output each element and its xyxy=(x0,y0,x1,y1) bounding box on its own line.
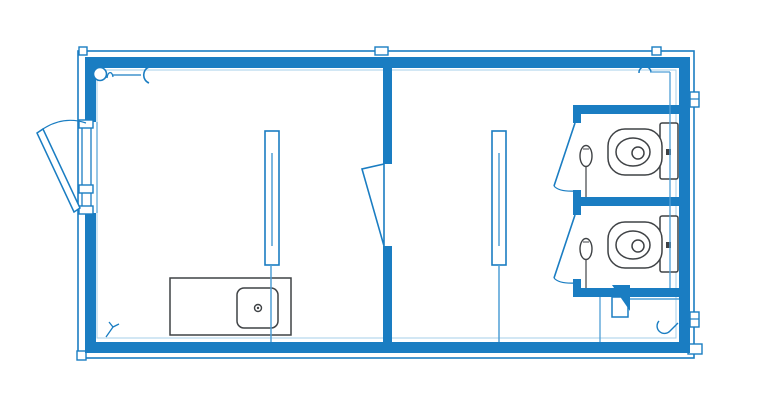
stall1-door-leaf xyxy=(554,123,575,186)
entry-door-hinge-middle xyxy=(79,185,93,193)
wall-right xyxy=(679,57,690,353)
switch-symbol-bottom-left xyxy=(106,322,119,337)
stall2-door-swing xyxy=(554,278,576,283)
stall-wall-middle xyxy=(573,197,679,206)
floorplan-canvas xyxy=(0,0,768,420)
toilet2-flush xyxy=(632,240,644,252)
wall-left-upper xyxy=(85,57,96,122)
partition-wall-lower xyxy=(383,246,392,353)
sink-drain-dot xyxy=(257,307,259,309)
entry-door-hinge-bottom xyxy=(79,206,93,214)
corner-joint-bottom-left xyxy=(77,351,86,360)
sanitary-container-floorplan xyxy=(0,0,768,420)
stall-wall-top-post xyxy=(573,105,581,123)
corner-cap-bottom-right xyxy=(688,344,702,354)
stall2-door-leaf xyxy=(554,215,575,278)
partition-wall-upper xyxy=(383,57,392,164)
socket-symbol-bottom-right xyxy=(657,321,678,333)
entry-door-leaf xyxy=(37,129,80,212)
stall1-door-swing xyxy=(554,186,576,191)
joint-top-partition xyxy=(375,47,388,55)
stall-wall-middle-post xyxy=(573,190,581,215)
entry-door-jamb xyxy=(82,122,91,213)
partition-door-leaf xyxy=(362,164,384,246)
lamp-symbol-circle xyxy=(94,68,107,81)
stall-wall-bottom-post xyxy=(573,279,581,297)
stall-wall-top xyxy=(573,105,679,114)
wall-left-lower xyxy=(85,213,96,353)
toilet1-flush xyxy=(632,147,644,159)
lamp-symbol-squiggle xyxy=(107,73,113,78)
connection-bracket-symbol xyxy=(144,67,149,83)
corner-joint-top-left xyxy=(79,47,87,55)
joint-top-right xyxy=(652,47,661,55)
